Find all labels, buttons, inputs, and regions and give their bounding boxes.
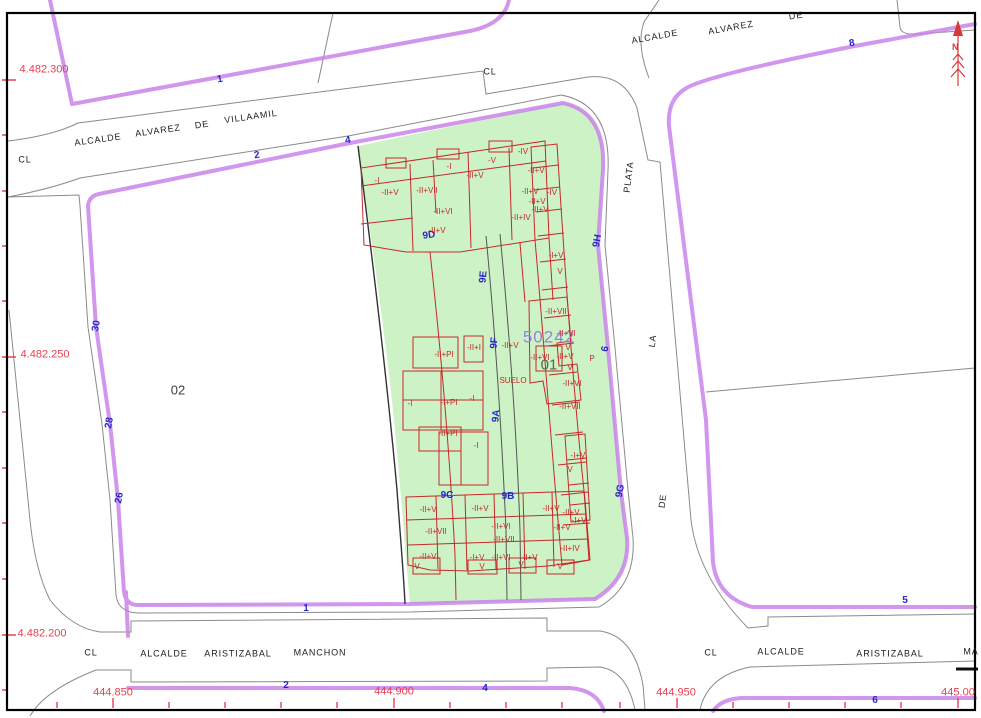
cadastral-map[interactable]: N 5024201024.482.3004.482.2504.482.20044… <box>0 0 981 718</box>
map-canvas <box>0 0 981 718</box>
